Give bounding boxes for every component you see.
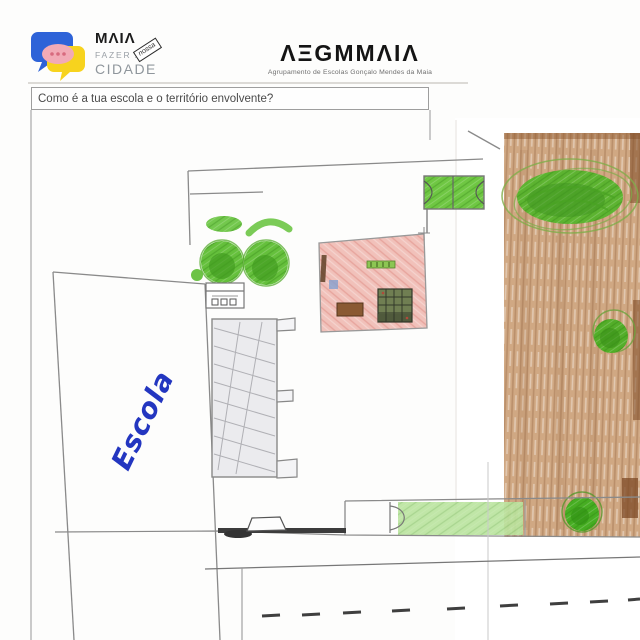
scanned-worksheet: MΛIΛ FAZER A CIDADE nossa ΛΞGMMΛIΛ Agrup… bbox=[0, 0, 640, 640]
escola-handwritten-label: Escola bbox=[105, 365, 181, 475]
hedge-arc bbox=[249, 222, 289, 233]
classroom-building-pink bbox=[319, 227, 430, 332]
dark-brown-edge bbox=[633, 300, 640, 420]
window-grid bbox=[378, 289, 412, 322]
bush-left bbox=[200, 240, 244, 284]
bush-small bbox=[191, 269, 203, 281]
small-structure bbox=[247, 517, 286, 531]
building-tab bbox=[277, 459, 297, 478]
school-building-shaded bbox=[212, 318, 297, 478]
stairs-detail bbox=[206, 283, 244, 308]
child-drawing-canvas: Escola bbox=[0, 0, 640, 640]
building-tab bbox=[277, 390, 293, 402]
green-planter bbox=[367, 261, 395, 268]
building-tab bbox=[277, 318, 295, 331]
hedge bbox=[206, 216, 242, 232]
blue-speck bbox=[329, 280, 338, 289]
bush-right bbox=[243, 240, 289, 286]
door bbox=[337, 303, 363, 316]
dark-brown-edge bbox=[622, 478, 638, 518]
